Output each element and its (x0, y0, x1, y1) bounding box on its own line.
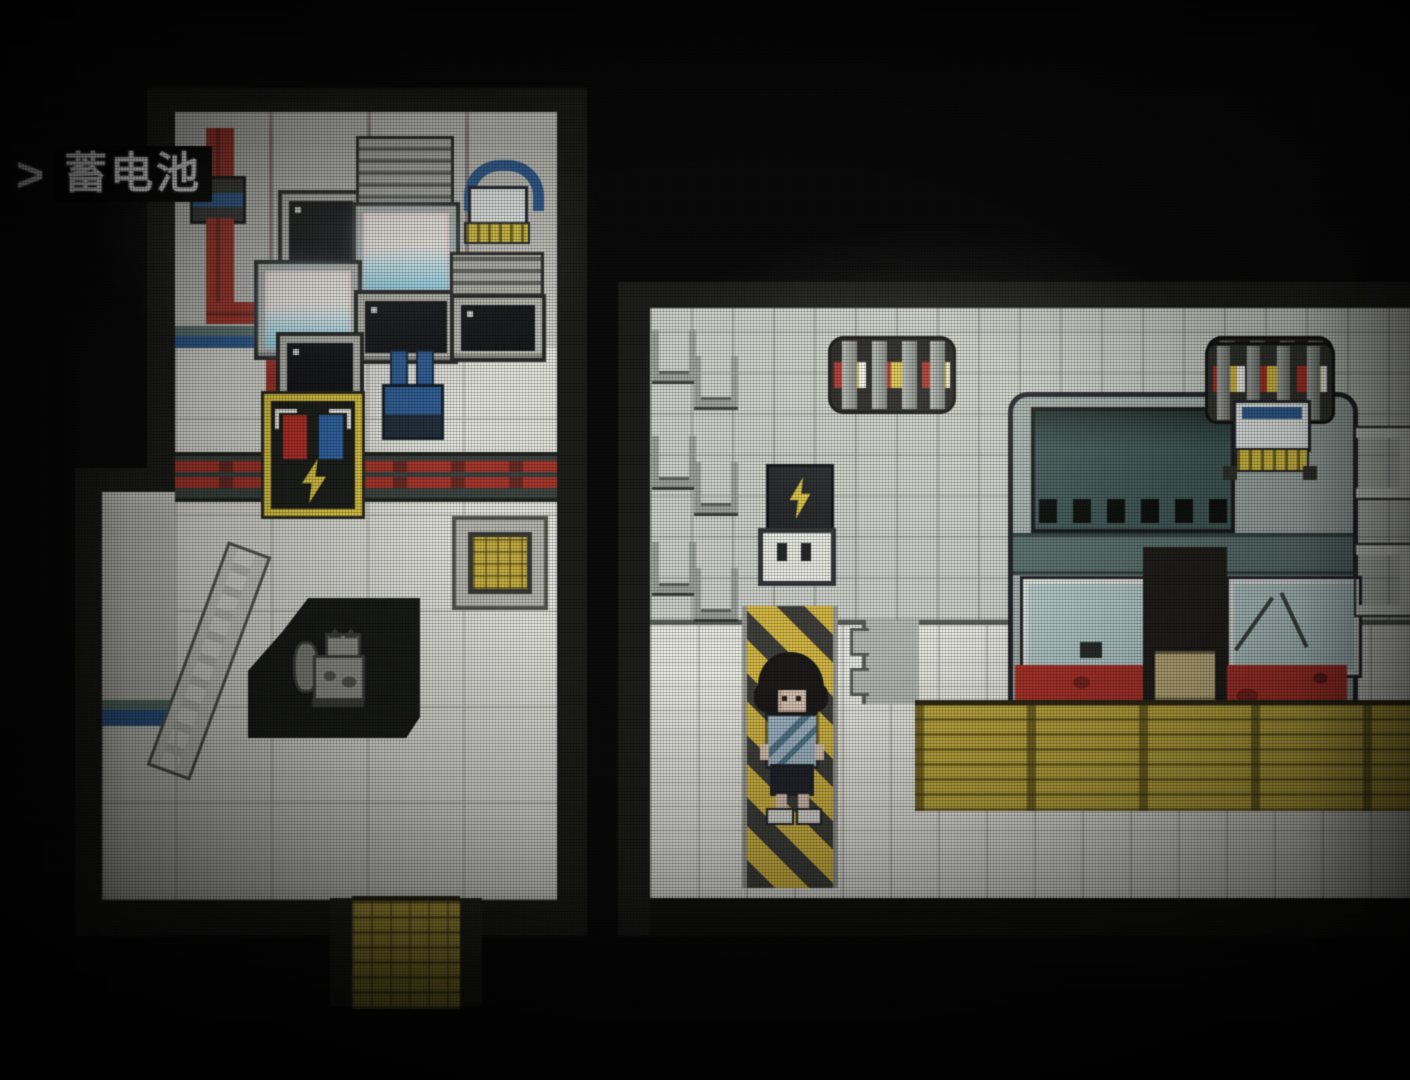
left-room-wall-east (557, 88, 587, 936)
scene: > 蓄电池 (0, 0, 1410, 1080)
cat (294, 634, 370, 712)
right-room-wall-west (618, 282, 650, 936)
outlet-slot (801, 543, 811, 561)
player-shorts (770, 764, 814, 796)
battery-unit (264, 394, 362, 516)
step-tile (850, 628, 869, 656)
wall-bracket (1356, 545, 1410, 615)
exit-side-wall (460, 898, 482, 1006)
window-crack (1234, 597, 1274, 652)
yellow-floor-grate (915, 700, 1410, 811)
machine-window (1023, 579, 1153, 675)
wall-step-block (862, 620, 919, 704)
player-eye (782, 696, 787, 701)
player-eye (796, 696, 801, 701)
player-arm (760, 744, 769, 760)
cat-body (316, 658, 362, 698)
door-panel (1155, 651, 1215, 707)
exit-grate (352, 896, 460, 1009)
machine-door (1143, 547, 1227, 715)
right-room-wall-top (618, 282, 1410, 308)
left-room-wall-wing-top (75, 468, 177, 492)
right-room-wall-bottom (650, 898, 1410, 936)
cable-duct (175, 452, 557, 502)
wall-rung (652, 330, 696, 381)
player-arm (815, 744, 824, 760)
crt-monitor-off (450, 294, 546, 362)
step-tile (850, 668, 869, 696)
lightning-bolt-icon (299, 459, 329, 503)
left-wing-wall (102, 492, 175, 704)
left-room-wall-west-lower (75, 468, 102, 936)
wall-rung (652, 436, 696, 487)
player-face (778, 690, 806, 712)
wall-bracket (1356, 428, 1410, 498)
floor-hatch (452, 516, 548, 610)
wall-rung (652, 542, 696, 593)
robot-band (464, 222, 530, 244)
cat-ear (328, 628, 342, 638)
crt-monitor-on (352, 202, 460, 302)
player-shirt (768, 716, 816, 766)
robot-device (1205, 342, 1345, 482)
player-shoe (766, 808, 794, 825)
player-character (754, 652, 830, 822)
cat-ear (344, 628, 358, 638)
wall-rung (694, 356, 738, 407)
power-outlet (758, 528, 836, 586)
wall-rung (694, 568, 738, 619)
wall-rung (694, 462, 738, 513)
outlet-slot (777, 543, 787, 561)
connector-body (382, 384, 444, 440)
left-room-wall-bottom-left (75, 900, 352, 936)
left-room-wall-top (147, 88, 587, 114)
outlet-sign (766, 464, 834, 534)
robot-foot (1223, 466, 1237, 480)
cat-tail (296, 644, 316, 690)
control-console (450, 252, 544, 300)
battery-bracket (275, 409, 297, 429)
window-smudge (1080, 642, 1102, 658)
robot-head (1233, 400, 1311, 452)
exit-side-wall (330, 898, 352, 1006)
game-viewport[interactable]: > 蓄电池 (0, 0, 1410, 1080)
robot-visor (1242, 407, 1302, 419)
cat-shadow (312, 698, 364, 707)
machine-window-cracked (1229, 579, 1359, 675)
lightning-bolt-icon (787, 477, 813, 519)
wall-vent (828, 336, 956, 414)
battery-bracket (329, 409, 351, 429)
robot-band (1235, 448, 1309, 472)
window-crack (1280, 592, 1309, 648)
prompt-marker: > (16, 150, 44, 202)
robot-foot (1303, 466, 1317, 480)
player-shoe (796, 808, 822, 825)
objective-label: 蓄电池 (54, 146, 212, 202)
